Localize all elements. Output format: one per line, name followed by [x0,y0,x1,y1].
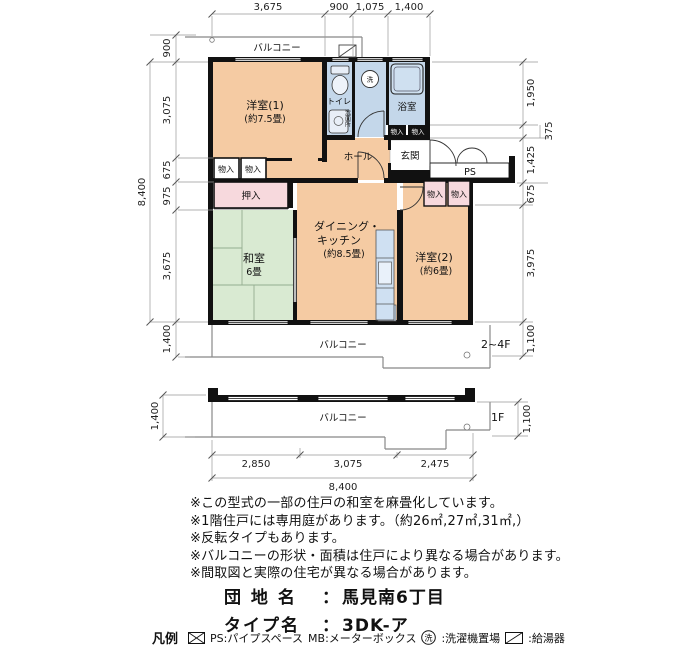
dim-left-5: 3,675 [162,252,173,281]
legend-mb-text: MB:メーターボックス [308,630,416,646]
hall-label: ホール [344,152,373,163]
legend-laundry-text: :洗濯機置場 [441,630,500,646]
entrance-label: 玄関 [400,150,419,162]
dk-size: (約8.5畳) [323,248,365,260]
closet-black-2: 物入 [412,127,426,136]
closet-pink-1: 物入 [427,189,443,199]
dim-right-2: 375 [544,121,555,140]
dim-top-4: 1,400 [395,2,424,13]
bathtub-icon [391,64,423,94]
estate-name-label: 団 地 名 [224,583,322,608]
dim-bottom-total: 8,400 [329,482,358,493]
laundry-place-icon: 洗 [421,630,436,645]
closet-white-1: 物入 [218,164,234,174]
japanese-label: 和室 [243,251,265,265]
note-line: ※バルコニーの形状・面積は住戸により異なる場合があります。 [190,548,630,566]
pipe-space-icon [188,632,205,644]
dim-left-3: 675 [162,160,173,179]
dim-bottom-2: 3,075 [334,459,363,470]
ps-label: PS [464,167,476,178]
dim-right-5: 3,975 [526,249,537,278]
estate-name-colon: ： [322,583,342,608]
toilet-label: トイレ [327,97,351,106]
balcony-top-label: バルコニー [253,43,300,54]
floor-1f-tag: 1F [491,411,504,424]
dim-right-3: 1,425 [526,146,537,175]
note-line: ※反転タイプもあります。 [190,530,630,548]
dim-1f-left: 1,400 [150,402,161,431]
legend-title: 凡例 [152,628,178,647]
dim-bottom-1: 2,850 [242,459,271,470]
toilet-icon [331,66,349,95]
western1-label: 洋室(1) [246,98,284,112]
laundry-mark: 洗 [367,75,374,84]
western1-size: (約7.5畳) [244,113,286,125]
kitchen-counter [376,230,394,320]
dim-left-6: 1,400 [162,325,173,354]
dim-top-2: 900 [329,2,348,13]
dim-right-4: 675 [526,184,537,203]
balcony-mid-label: バルコニー [319,340,366,351]
closet-pink-2: 物入 [451,189,467,199]
water-heater-legend-icon [505,632,523,644]
bath-label: 浴室 [397,101,416,113]
dim-right-6: 1,100 [526,325,537,354]
dim-right-1: 1,950 [526,79,537,108]
laundry-place-symbol: 洗 [425,632,433,642]
washroom-label: 洗面所 [344,108,351,128]
dim-top-1: 3,675 [254,2,283,13]
legend-row: 凡例 PS:パイプスペース MB:メーターボックス 洗 :洗濯機置場 :給湯器 [152,628,565,647]
dim-top-3: 1,075 [356,2,385,13]
closet-white-2: 物入 [245,164,261,174]
japanese-size: 6畳 [246,267,262,278]
oshiire-label: 押入 [241,190,261,202]
balcony-1f-label: バルコニー [319,413,366,424]
western2-size: (約6畳) [420,265,452,277]
western2-label: 洋室(2) [415,250,453,264]
dim-left-total: 8,400 [137,178,148,207]
closet-black-1: 物入 [391,127,405,136]
dim-bottom-3: 2,475 [421,459,450,470]
legend-heater-text: :給湯器 [528,630,565,646]
legend-ps-text: PS:パイプスペース [210,630,303,646]
dim-1f-right: 1,100 [522,405,533,434]
note-line: ※この型式の一部の住戸の和室を麻畳化しています。 [190,495,630,513]
floor-mid-tag: 2~4F [481,338,511,351]
floor-plan-page: 3,675 900 1,075 1,400 900 3,075 675 975 … [0,0,700,650]
dim-left-4: 975 [162,186,173,205]
dim-left-1: 900 [162,38,173,57]
dk-label-1: ダイニング・ [314,219,380,233]
water-heater-icon [339,45,356,57]
dk-label-2: キッチン [317,234,361,247]
dim-left-2: 3,075 [162,96,173,125]
estate-name-value: 馬見南6丁目 [342,583,445,608]
note-line: ※間取図と実際の住宅が異なる場合があります。 [190,565,630,583]
notes-block: ※この型式の一部の住戸の和室を麻畳化しています。 ※1階住戸には専用庭があります… [190,495,630,583]
note-line: ※1階住戸には専用庭があります。（約26㎡,27㎡,31㎡,） [190,513,630,531]
